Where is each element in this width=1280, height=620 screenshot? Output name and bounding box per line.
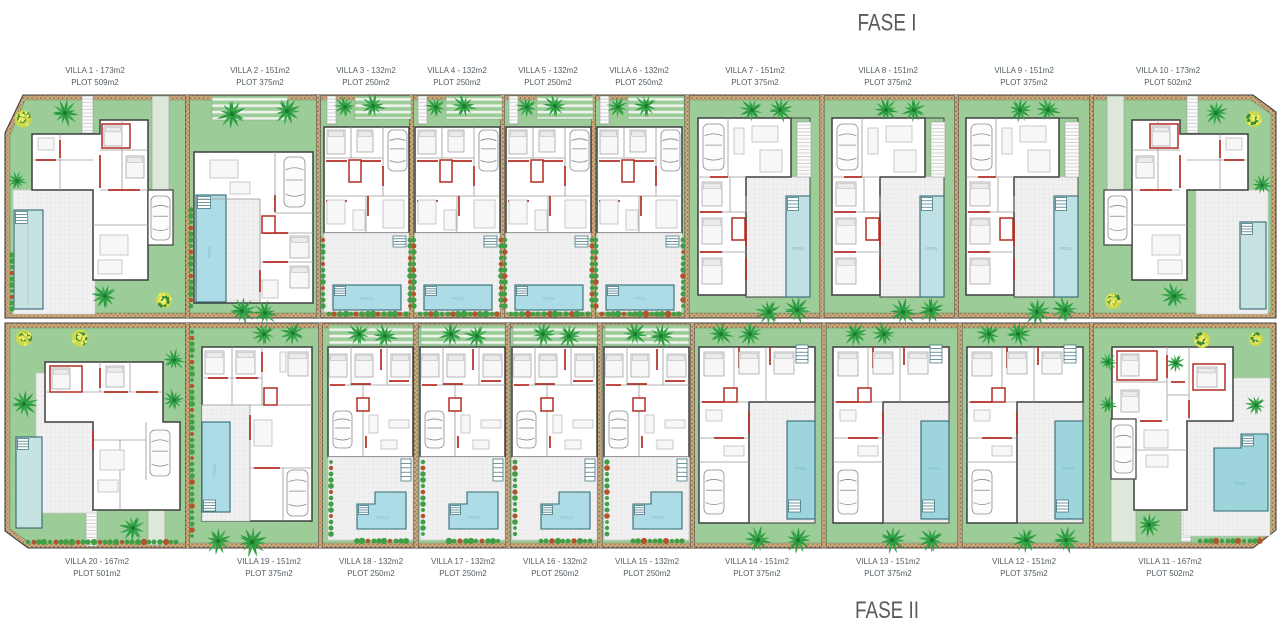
svg-text:VILLA 16 - 132m2: VILLA 16 - 132m2 <box>523 557 588 566</box>
svg-text:PLOT 375m2: PLOT 375m2 <box>1000 78 1048 87</box>
svg-text:PLOT 375m2: PLOT 375m2 <box>1000 569 1048 578</box>
svg-text:VILLA 5 - 132m2: VILLA 5 - 132m2 <box>518 66 578 75</box>
svg-text:VILLA 10 - 173m2: VILLA 10 - 173m2 <box>1136 66 1201 75</box>
svg-text:VILLA 19 - 151m2: VILLA 19 - 151m2 <box>237 557 302 566</box>
svg-text:PLOT 509m2: PLOT 509m2 <box>71 78 119 87</box>
svg-text:FASE II: FASE II <box>855 597 919 620</box>
svg-text:POOL: POOL <box>377 515 390 520</box>
svg-text:VILLA 6 - 132m2: VILLA 6 - 132m2 <box>609 66 669 75</box>
svg-text:PLOT 375m2: PLOT 375m2 <box>733 569 781 578</box>
svg-text:VILLA 13 - 151m2: VILLA 13 - 151m2 <box>856 557 921 566</box>
svg-text:VILLA 9 - 151m2: VILLA 9 - 151m2 <box>994 66 1054 75</box>
svg-text:PLOT 375m2: PLOT 375m2 <box>731 78 779 87</box>
svg-text:POOL: POOL <box>926 246 938 251</box>
svg-text:POOL: POOL <box>929 466 941 471</box>
svg-text:PLOT 250m2: PLOT 250m2 <box>439 569 487 578</box>
svg-text:PLOT 375m2: PLOT 375m2 <box>864 78 912 87</box>
svg-text:PLOT 250m2: PLOT 250m2 <box>531 569 579 578</box>
svg-text:VILLA 15 - 132m2: VILLA 15 - 132m2 <box>615 557 680 566</box>
svg-text:POOL: POOL <box>1060 246 1072 251</box>
svg-text:VILLA 17 - 132m2: VILLA 17 - 132m2 <box>431 557 496 566</box>
svg-text:VILLA 7 - 151m2: VILLA 7 - 151m2 <box>725 66 785 75</box>
svg-text:PLOT 250m2: PLOT 250m2 <box>524 78 572 87</box>
svg-text:FASE I: FASE I <box>858 10 917 37</box>
svg-text:VILLA 8 - 151m2: VILLA 8 - 151m2 <box>858 66 918 75</box>
svg-text:VILLA 3 - 132m2: VILLA 3 - 132m2 <box>336 66 396 75</box>
svg-text:VILLA 11 - 167m2: VILLA 11 - 167m2 <box>1138 557 1202 566</box>
svg-text:PLOT 250m2: PLOT 250m2 <box>615 78 663 87</box>
svg-text:VILLA 12 - 151m2: VILLA 12 - 151m2 <box>992 557 1057 566</box>
svg-text:PLOT 375m2: PLOT 375m2 <box>245 569 293 578</box>
svg-text:VILLA 1 - 173m2: VILLA 1 - 173m2 <box>65 66 125 75</box>
svg-text:PLOT 250m2: PLOT 250m2 <box>347 569 395 578</box>
svg-text:PLOT 250m2: PLOT 250m2 <box>342 78 390 87</box>
svg-text:PLOT 502m2: PLOT 502m2 <box>1146 569 1194 578</box>
svg-text:POOL: POOL <box>452 296 465 301</box>
svg-text:PLOT 502m2: PLOT 502m2 <box>1144 78 1192 87</box>
svg-text:VILLA 2 - 151m2: VILLA 2 - 151m2 <box>230 66 290 75</box>
svg-text:POOL: POOL <box>795 466 807 471</box>
svg-text:PLOT 375m2: PLOT 375m2 <box>236 78 284 87</box>
svg-text:POOL: POOL <box>653 515 666 520</box>
svg-text:POOL: POOL <box>207 246 212 258</box>
svg-text:POOL: POOL <box>1235 481 1247 486</box>
svg-text:VILLA 14 - 151m2: VILLA 14 - 151m2 <box>725 557 790 566</box>
svg-text:POOL: POOL <box>212 464 217 476</box>
svg-text:POOL: POOL <box>561 515 574 520</box>
svg-text:PLOT 250m2: PLOT 250m2 <box>623 569 671 578</box>
svg-text:PLOT 501m2: PLOT 501m2 <box>73 569 121 578</box>
svg-text:POOL: POOL <box>634 296 647 301</box>
svg-text:VILLA 18 - 132m2: VILLA 18 - 132m2 <box>339 557 404 566</box>
svg-text:POOL: POOL <box>469 515 482 520</box>
svg-text:PLOT 250m2: PLOT 250m2 <box>433 78 481 87</box>
svg-text:VILLA 20 - 167m2: VILLA 20 - 167m2 <box>65 557 130 566</box>
svg-text:POOL: POOL <box>543 296 556 301</box>
svg-text:POOL: POOL <box>361 296 374 301</box>
svg-text:VILLA 4 - 132m2: VILLA 4 - 132m2 <box>427 66 487 75</box>
svg-text:POOL: POOL <box>1063 466 1075 471</box>
svg-text:POOL: POOL <box>792 246 804 251</box>
svg-text:PLOT 375m2: PLOT 375m2 <box>864 569 912 578</box>
